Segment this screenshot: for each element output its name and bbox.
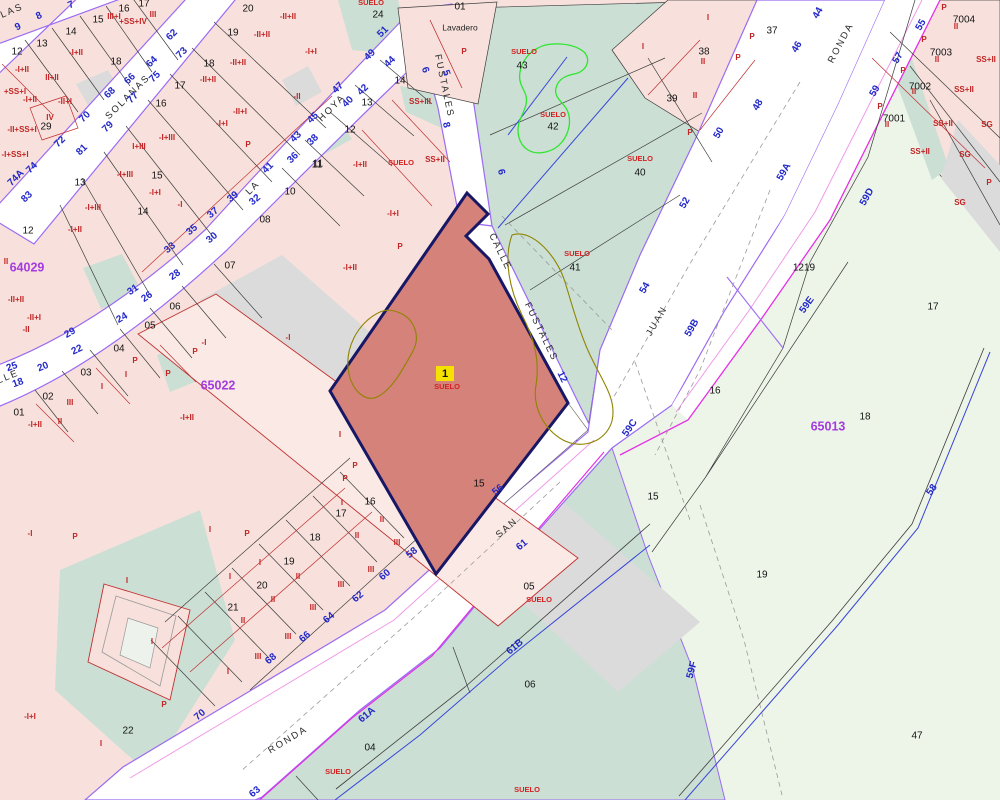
construction-code-label: II+II (45, 73, 59, 82)
parcel-number-label: 11 (312, 160, 323, 171)
parcel-number-label: 21 (227, 603, 239, 614)
construction-code-label: I (101, 382, 103, 391)
parcel-number-label: 1219 (793, 263, 816, 274)
construction-code-label: P (986, 178, 992, 187)
construction-code-label: -II+II (254, 30, 270, 39)
construction-code-label: II (693, 91, 697, 100)
construction-code-label: II (296, 572, 300, 581)
construction-code-label: SS+II (976, 55, 996, 64)
construction-code-label: P (192, 347, 198, 356)
construction-code-label: I (125, 370, 127, 379)
parcel-number-label: 13 (36, 39, 48, 50)
construction-code-label: I (229, 572, 231, 581)
construction-code-label: I (100, 739, 102, 748)
construction-code-label: -II+I (58, 97, 72, 106)
parcel-number-label: 17 (174, 81, 186, 92)
parcel-number-label: 29 (40, 122, 52, 133)
construction-code-label: -I+I (149, 188, 161, 197)
parcel-number-label: 01 (454, 2, 466, 13)
parcel-number-label: 47 (911, 731, 923, 742)
construction-code-label: II (355, 531, 359, 540)
construction-code-label: P (941, 3, 947, 12)
construction-code-label: SS+II (425, 155, 445, 164)
construction-code-label: II (271, 595, 275, 604)
parcel-number-label: 16 (364, 497, 376, 508)
construction-code-label: P (342, 474, 348, 483)
parcel-number-label: 20 (256, 581, 268, 592)
construction-code-label: P (749, 32, 755, 41)
parcel-number-label: 17 (138, 0, 150, 10)
construction-code-label: P (461, 47, 467, 56)
construction-code-label: II (954, 22, 958, 31)
block-number-label: 65022 (201, 378, 236, 392)
parcel-number-label: 02 (42, 392, 54, 403)
parcel-number-label: 15 (92, 15, 104, 26)
construction-code-label: -I+II (180, 413, 194, 422)
construction-code-label: P (921, 35, 927, 44)
construction-code-label: -II+II (280, 12, 296, 21)
parcel-number-label: 08 (259, 215, 271, 226)
construction-code-label: -I (178, 200, 183, 209)
construction-code-label: -I+III (159, 133, 175, 142)
construction-code-label: P (735, 53, 741, 62)
construction-code-label: III (150, 10, 157, 19)
construction-code-label: -II+I (27, 313, 41, 322)
parcel-number-label: 04 (364, 743, 376, 754)
construction-code-label: P (244, 529, 250, 538)
construction-code-label: I (707, 13, 709, 22)
construction-code-label: -II+II (230, 58, 246, 67)
parcel-number-label: 20 (242, 4, 254, 15)
parcel-number-label: 19 (227, 28, 239, 39)
parcel-number-label: 14 (394, 76, 406, 87)
construction-code-label: -I+SS+I (1, 150, 28, 159)
parcel-number-label: 16 (155, 99, 167, 110)
cadastral-map-stage: 1 SUELO LASSOLANASHOYALALLEFUSTALESCALLE… (0, 0, 1000, 800)
parcel-number-label: 37 (766, 26, 778, 37)
parcel-number-label: 15 (151, 171, 163, 182)
construction-code-label: II (58, 417, 62, 426)
construction-code-label: -II (22, 325, 29, 334)
construction-code-label: I (126, 576, 128, 585)
parcel-number-label: 05 (523, 582, 535, 593)
parcel-number-label: 04 (113, 344, 125, 355)
parcel-number-label: 7003 (930, 48, 953, 59)
construction-code-label: III (394, 538, 401, 547)
construction-code-label: -II (293, 92, 300, 101)
parcel-number-label: 05 (144, 321, 156, 332)
construction-code-label: -I+II (28, 420, 42, 429)
construction-code-label: -I+I (305, 47, 317, 56)
parcel-number-label: 18 (203, 59, 215, 70)
selected-parcel-number: 1 (442, 368, 448, 380)
parcel-number-label: 24 (372, 10, 384, 21)
block-number-label: 65013 (811, 419, 846, 433)
construction-code-label: II (912, 87, 916, 96)
construction-code-label: II (935, 55, 939, 64)
construction-code-label: -II+II (200, 75, 216, 84)
parcel-number-label: 15 (473, 479, 485, 490)
parcel-number-label: 18 (859, 412, 871, 423)
construction-code-label: I+III (132, 142, 146, 151)
construction-code-label: -II+SS+I (7, 125, 36, 134)
parcel-number-label: 19 (283, 557, 295, 568)
construction-code-label: III (368, 565, 375, 574)
construction-code-label: I (151, 637, 153, 646)
construction-code-label: I (642, 42, 644, 51)
construction-code-label: SS+III (409, 97, 431, 106)
parcel-number-label: 41 (569, 263, 581, 274)
parcel-number-label: 17 (335, 509, 347, 520)
parcel-number-label: 03 (80, 368, 92, 379)
construction-code-label: I (341, 498, 343, 507)
construction-code-label: -II+II (8, 295, 24, 304)
parcel-number-label: 13 (74, 178, 86, 189)
parcel-number-label: 19 (756, 570, 768, 581)
construction-code-label: -I+I (387, 209, 399, 218)
parcel-number-label: 39 (666, 94, 678, 105)
construction-code-label: -I (28, 529, 33, 538)
parcel-number-label: 13 (361, 98, 373, 109)
construction-code-label: -I (202, 338, 207, 347)
construction-code-label: II (4, 257, 8, 266)
construction-code-label: P (877, 102, 883, 111)
construction-code-label: -I (286, 333, 291, 342)
construction-code-label: -I+II (15, 65, 29, 74)
map-canvas[interactable]: 1 SUELO LASSOLANASHOYALALLEFUSTALESCALLE… (0, 0, 1000, 800)
construction-code-label: III (310, 603, 317, 612)
construction-code-label: II (701, 57, 705, 66)
construction-code-label: SG (981, 120, 993, 129)
parcel-number-label: 18 (309, 533, 321, 544)
parcel-number-label: 40 (634, 168, 646, 179)
parcel-number-label: 12 (344, 125, 356, 136)
construction-code-label: II (885, 120, 889, 129)
construction-code-label: -I+II (353, 160, 367, 169)
construction-code-label: III (67, 398, 74, 407)
suelo-label: SUELO (564, 249, 590, 258)
parcel-number-label: 10 (284, 187, 296, 198)
construction-code-label: SS+II (910, 147, 930, 156)
parcel-number-label: 15 (647, 492, 659, 503)
parcel-number-label: 18 (110, 57, 122, 68)
parcel-number-label: 17 (927, 302, 939, 313)
construction-code-label: P (72, 532, 78, 541)
construction-code-label: I (227, 667, 229, 676)
construction-code-label: P (397, 242, 403, 251)
suelo-label: SUELO (514, 785, 540, 794)
suelo-label: SUELO (540, 110, 566, 119)
suelo-label: SUELO (388, 158, 414, 167)
construction-code-label: I (339, 430, 341, 439)
construction-code-label: -I+III (85, 203, 101, 212)
construction-code-label: P (165, 369, 171, 378)
construction-code-label: SG (954, 198, 966, 207)
parcel-number-label: 12 (22, 226, 34, 237)
suelo-label: SUELO (526, 595, 552, 604)
construction-code-label: I (209, 525, 211, 534)
construction-code-label: III (255, 652, 262, 661)
parcel-number-label: 06 (524, 680, 536, 691)
construction-code-label: II (380, 515, 384, 524)
other-labels: Lavadero (442, 22, 478, 32)
construction-code-label: -I+I (216, 119, 228, 128)
construction-code-label: P (687, 128, 693, 137)
parcel-number-label: 06 (169, 302, 181, 313)
construction-code-label: IV (46, 113, 54, 122)
construction-code-label: -II+I (233, 107, 247, 116)
construction-code-label: III (285, 632, 292, 641)
suelo-label: SUELO (511, 47, 537, 56)
construction-code-label: -I+II (69, 48, 83, 57)
construction-code-label: P (245, 140, 251, 149)
construction-code-label: -I+III (117, 170, 133, 179)
construction-code-label: SS+II (933, 119, 953, 128)
parcel-number-label: 43 (516, 61, 528, 72)
parcel-number-label: 42 (547, 122, 559, 133)
parcel-number-label: 38 (698, 47, 710, 58)
parcel-number-label: 12 (11, 47, 23, 58)
suelo-label: SUELO (325, 767, 351, 776)
parcel-number-label: 16 (709, 386, 721, 397)
suelo-label: SUELO (358, 0, 384, 7)
construction-code-label: SG (959, 150, 971, 159)
place-name-label: Lavadero (442, 22, 478, 32)
construction-code-label: -I+I (24, 712, 36, 721)
block-number-label: 64029 (10, 260, 45, 274)
selected-parcel-suelo-label: SUELO (434, 382, 460, 391)
construction-code-label: II (241, 616, 245, 625)
parcel-number-label: 07 (224, 261, 236, 272)
construction-code-label: I (259, 558, 261, 567)
construction-code-label: III (338, 580, 345, 589)
construction-code-label: P (161, 700, 167, 709)
construction-code-label: P (352, 461, 358, 470)
construction-code-label: -I+II (343, 263, 357, 272)
construction-code-label: P (132, 356, 138, 365)
parcel-number-label: 22 (122, 726, 134, 737)
parcel-number-label: 14 (65, 27, 77, 38)
construction-code-label: SS+II (954, 85, 974, 94)
construction-code-label: -I+II (23, 95, 37, 104)
suelo-label: SUELO (627, 154, 653, 163)
parcel-number-label: 14 (137, 207, 149, 218)
parcel-number-label: 01 (13, 408, 25, 419)
construction-code-label: +SS+IV (119, 17, 147, 26)
construction-code-label: -I+II (68, 225, 82, 234)
construction-code-label: P (900, 66, 906, 75)
